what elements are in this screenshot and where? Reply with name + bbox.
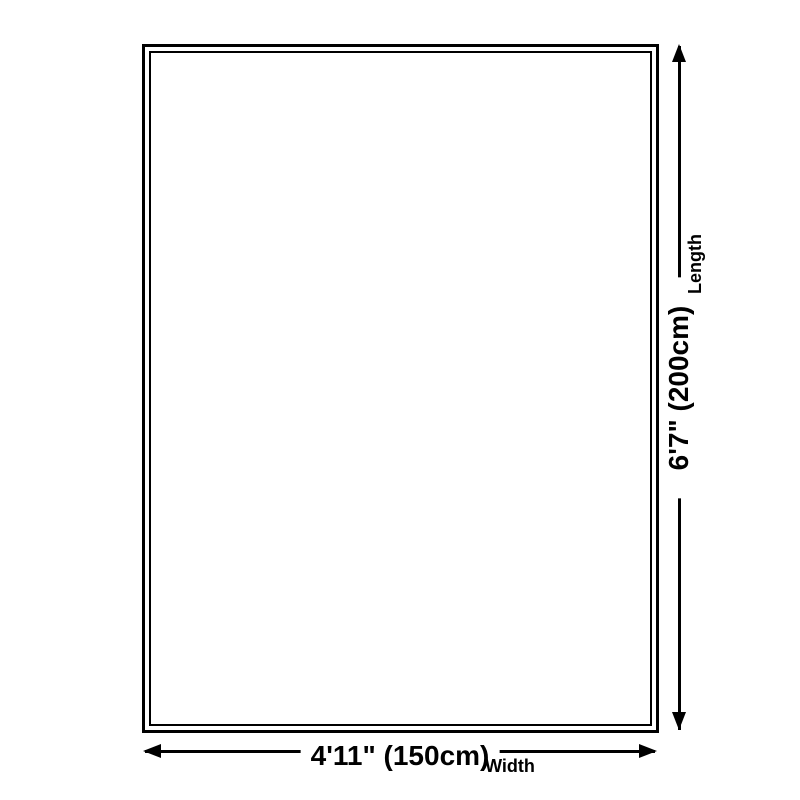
arrow-up-icon <box>672 44 686 62</box>
width-label: Width <box>485 757 535 775</box>
arrow-right-icon <box>639 744 657 758</box>
dimension-diagram: 6'7" (200cm) Length 4'11" (150cm) Width <box>0 0 800 800</box>
length-value: 6'7" (200cm) <box>665 278 693 499</box>
width-value: 4'11" (150cm) <box>301 742 500 770</box>
arrow-left-icon <box>143 744 161 758</box>
length-label: Length <box>686 234 704 294</box>
arrow-down-icon <box>672 712 686 730</box>
rug-outline <box>142 44 659 733</box>
rug-inner-outline <box>149 51 652 726</box>
